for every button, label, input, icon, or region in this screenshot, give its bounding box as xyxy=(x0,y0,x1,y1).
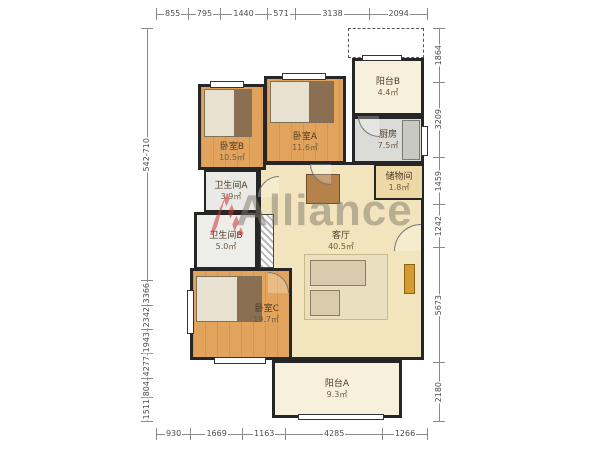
room-area: 3.9㎡ xyxy=(221,192,242,202)
room-area: 19.7㎡ xyxy=(253,315,279,325)
bed-icon xyxy=(196,276,262,322)
kitchen-counter-icon xyxy=(402,120,420,160)
room-name: 卫生间B xyxy=(209,231,242,242)
window xyxy=(298,414,384,420)
room-bathroom-b: 卫生间B 5.0㎡ xyxy=(194,212,258,270)
room-name: 储物间 xyxy=(385,172,412,183)
window xyxy=(362,55,402,61)
dim-segment: 2180 xyxy=(433,362,445,422)
room-bathroom-a: 卫生间A 3.9㎡ xyxy=(204,170,258,212)
room-name: 厨房 xyxy=(379,130,397,141)
room-balcony-b-open-area xyxy=(348,28,424,58)
sofa-icon xyxy=(310,260,366,286)
dim-label: 2180 xyxy=(435,381,443,403)
dim-segment: 1440 xyxy=(220,8,267,20)
room-area: 9.3㎡ xyxy=(327,390,348,400)
dim-label: 1511 xyxy=(143,398,151,420)
dim-segment: 795 xyxy=(188,8,219,20)
dim-label: 3138 xyxy=(321,10,343,18)
bed-blanket xyxy=(309,82,333,122)
room-balcony-b: 阳台B 4.4㎡ xyxy=(352,58,424,116)
room-area: 11.6㎡ xyxy=(292,143,318,153)
bed-icon xyxy=(204,89,252,137)
dim-label: 1669 xyxy=(205,430,227,438)
dim-label: 4285 xyxy=(323,430,345,438)
dimension-rail-top: 855795144057131382094 xyxy=(156,8,428,20)
dim-segment: 1242 xyxy=(433,204,445,247)
dim-label: 795 xyxy=(196,10,213,18)
dim-label: 1266 xyxy=(394,430,416,438)
dimension-rail-left: 542-71033662342194342778041511 xyxy=(141,28,153,422)
dim-segment: 571 xyxy=(267,8,295,20)
room-balcony-a: 阳台A 9.3㎡ xyxy=(272,360,402,418)
dim-segment: 855 xyxy=(156,8,188,20)
room-area: 10.5㎡ xyxy=(219,153,245,163)
dim-label: 1242 xyxy=(435,215,443,237)
room-area: 5.0㎡ xyxy=(216,242,237,252)
dim-segment: 4277 xyxy=(141,353,153,378)
room-storage: 储物间 1.8㎡ xyxy=(374,164,424,200)
room-area: 7.5㎡ xyxy=(378,141,399,151)
room-name: 卧室A xyxy=(293,132,317,143)
dim-segment: 1266 xyxy=(382,428,428,440)
dim-segment: 5673 xyxy=(433,247,445,362)
dim-segment: 4285 xyxy=(285,428,382,440)
dim-label: 2342 xyxy=(143,306,151,328)
dim-segment: 804 xyxy=(141,378,153,397)
duct-shaft xyxy=(260,214,274,268)
dim-label: 5673 xyxy=(435,294,443,316)
dim-label: 571 xyxy=(272,10,289,18)
dim-label: 4277 xyxy=(143,355,151,377)
window xyxy=(282,73,326,80)
dim-label: 3209 xyxy=(435,108,443,130)
dim-label: 855 xyxy=(164,10,181,18)
dim-segment: 542-710 xyxy=(141,28,153,280)
window xyxy=(210,81,244,88)
dim-label: 542-710 xyxy=(143,137,151,172)
dim-label: 930 xyxy=(165,430,182,438)
room-name: 卧室C xyxy=(255,304,279,315)
window xyxy=(187,290,194,334)
room-area: 40.5㎡ xyxy=(328,242,354,252)
room-name: 阳台B xyxy=(376,77,400,88)
room-area: 4.4㎡ xyxy=(378,88,399,98)
dim-segment: 1669 xyxy=(190,428,242,440)
dim-label: 1864 xyxy=(435,44,443,66)
dim-segment: 930 xyxy=(156,428,190,440)
floorplan-canvas: 855795144057131382094 930166911634285126… xyxy=(0,0,600,450)
dim-segment: 1459 xyxy=(433,157,445,204)
dim-label: 1943 xyxy=(143,331,151,353)
window xyxy=(421,126,428,156)
room-name: 卫生间A xyxy=(214,181,247,192)
tv-cabinet-icon xyxy=(404,264,415,294)
dim-segment: 2342 xyxy=(141,305,153,329)
room-area: 1.8㎡ xyxy=(389,183,410,193)
window xyxy=(214,357,266,364)
dim-segment: 3138 xyxy=(295,8,370,20)
dim-segment: 1864 xyxy=(433,28,445,82)
floorplan: 客厅 40.5㎡ 阳台B 4.4㎡ 厨房 7.5㎡ 储物间 1.8㎡ 卧室B 1… xyxy=(158,28,426,420)
room-name: 卧室B xyxy=(220,142,244,153)
dim-segment: 3366 xyxy=(141,280,153,305)
room-name: 阳台A xyxy=(325,379,349,390)
dim-label: 3366 xyxy=(143,282,151,304)
dimension-rail-bottom: 9301669116342851266 xyxy=(156,428,428,440)
dim-label: 1440 xyxy=(232,10,254,18)
dim-segment: 3209 xyxy=(433,82,445,157)
bed-icon xyxy=(270,81,334,123)
sofa-icon xyxy=(310,290,340,316)
room-name: 客厅 xyxy=(332,231,350,242)
dim-segment: 1943 xyxy=(141,329,153,353)
dim-label: 804 xyxy=(143,380,151,397)
bed-blanket xyxy=(234,90,251,136)
dim-label: 1459 xyxy=(435,170,443,192)
dim-label: 1163 xyxy=(253,430,275,438)
dimension-rail-right: 186432091459124256732180 xyxy=(433,28,445,422)
dim-label: 2094 xyxy=(388,10,410,18)
dim-segment: 1511 xyxy=(141,397,153,422)
dim-segment: 1163 xyxy=(242,428,285,440)
dim-segment: 2094 xyxy=(369,8,428,20)
